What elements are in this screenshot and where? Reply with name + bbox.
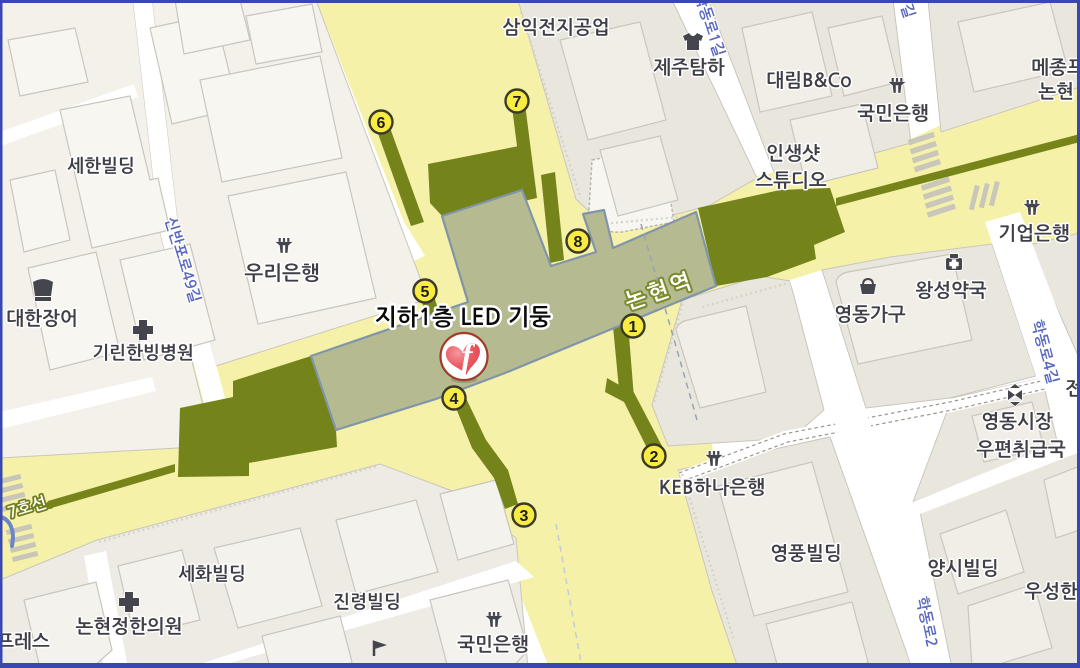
svg-text:8: 8 — [574, 234, 583, 251]
svg-text:6: 6 — [377, 115, 386, 132]
svg-text:3: 3 — [520, 508, 529, 525]
svg-text:1: 1 — [629, 319, 638, 336]
svg-text:7: 7 — [513, 94, 522, 111]
svg-text:4: 4 — [450, 391, 459, 408]
svg-text:5: 5 — [421, 284, 430, 301]
svg-text:2: 2 — [650, 449, 659, 466]
